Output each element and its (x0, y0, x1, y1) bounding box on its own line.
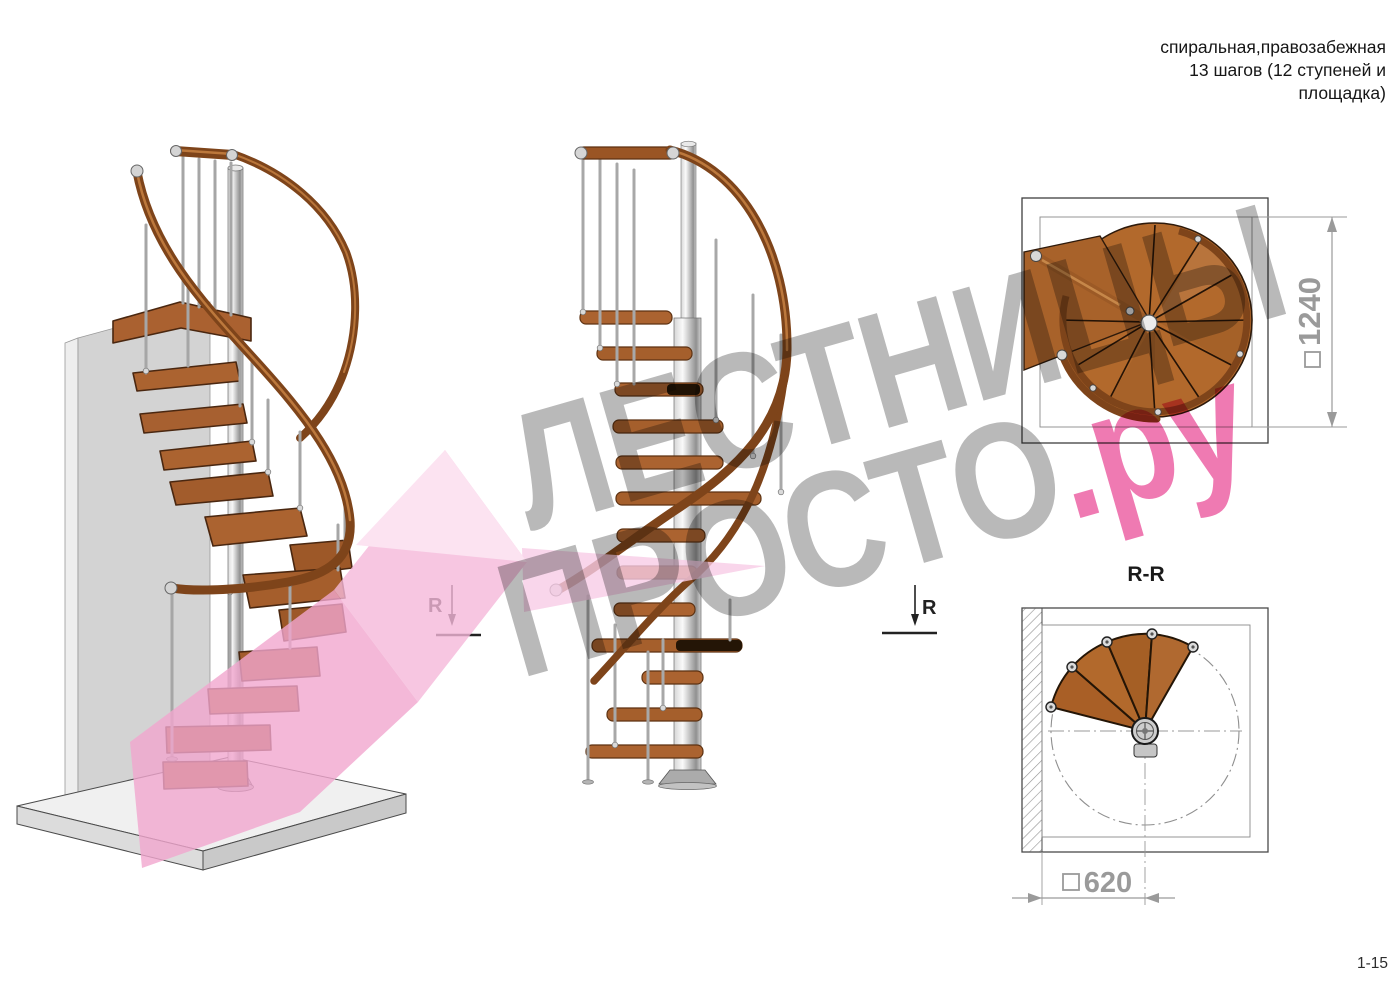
cut-marker-right-label: R (922, 597, 937, 619)
drawing-sheet: спиральная,правозабежная 13 шагов (12 ст… (0, 0, 1400, 1000)
cut-marker-layer: R R (0, 0, 1400, 1000)
page-number: 1-15 (1357, 955, 1388, 973)
cut-marker-left: R (428, 585, 481, 635)
cut-marker-left-label: R (428, 595, 443, 617)
title-line-2: 13 шагов (12 ступеней и (1160, 59, 1386, 82)
sheet-title-note: спиральная,правозабежная 13 шагов (12 ст… (1160, 36, 1386, 104)
title-line-3: площадка) (1160, 82, 1386, 105)
cut-marker-right: R (882, 585, 937, 633)
title-line-1: спиральная,правозабежная (1160, 36, 1386, 59)
